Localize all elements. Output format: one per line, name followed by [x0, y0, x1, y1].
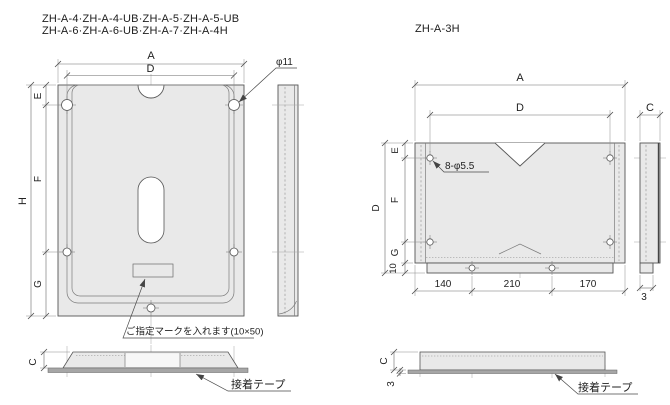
left-tape-strip [48, 368, 248, 373]
technical-drawing-page: ZH-A-4·ZH-A-4-UB·ZH-A-5·ZH-A-5-UB ZH-A-6… [0, 0, 670, 405]
right-bottom-view: C 3 接着テープ [379, 349, 638, 394]
left-dim-EFG: E F G [33, 82, 58, 319]
left-dim-D-label: D [147, 63, 155, 75]
right-dim-C-bottom-label: C [379, 357, 390, 364]
left-drawing: ZH-A-4·ZH-A-4-UB·ZH-A-5·ZH-A-5-UB ZH-A-6… [17, 13, 304, 391]
drawing-canvas: ZH-A-4·ZH-A-4-UB·ZH-A-5·ZH-A-5-UB ZH-A-6… [0, 0, 670, 405]
right-dim-10-label: 10 [388, 263, 399, 274]
left-tape-label: 接着テープ [231, 377, 285, 391]
left-hole-callout-label: φ11 [276, 57, 293, 68]
right-dim-vertical-outer-label: D [371, 204, 382, 211]
right-dim-3-bottom-label: 3 [386, 381, 397, 387]
right-dim-3-side-label: 3 [641, 292, 647, 303]
right-side-view: 3 [634, 143, 666, 303]
left-mark-note-text: ご指定マークを入れます(10×50) [126, 326, 264, 338]
right-bottom-strip [427, 263, 613, 273]
right-dim-G-label: G [390, 248, 401, 256]
left-dim-H-label: H [17, 197, 29, 205]
left-dim-F-label: F [33, 176, 44, 182]
right-dim-170-label: 170 [580, 279, 597, 290]
right-dim-D-label: D [516, 102, 524, 114]
right-dim-C-top: C [637, 102, 663, 141]
left-front-view [58, 85, 244, 316]
right-dim-C-top-label: C [646, 102, 654, 114]
right-bottom-profile [420, 352, 605, 370]
left-bottom-view: C 接着テープ [28, 349, 291, 391]
right-hole-callout-label: 8-φ5.5 [445, 161, 475, 172]
right-dim-F-label: F [390, 197, 401, 203]
left-title-line2: ZH-A-6·ZH-A-6-UB·ZH-A-7·ZH-A-4H [42, 25, 228, 37]
right-title: ZH-A-3H [415, 23, 460, 35]
right-dim-E-label: E [390, 147, 401, 153]
left-dim-C-label: C [28, 358, 39, 365]
right-tape-label: 接着テープ [578, 380, 632, 394]
right-dim-210-label: 210 [504, 279, 521, 290]
left-side-view [272, 85, 304, 316]
left-oval-slot [138, 177, 164, 243]
right-drawing: ZH-A-3H [371, 23, 666, 394]
right-dim-A-label: A [516, 72, 524, 84]
left-title-line1: ZH-A-4·ZH-A-4-UB·ZH-A-5·ZH-A-5-UB [42, 13, 239, 25]
left-dim-A-label: A [147, 50, 155, 62]
right-dim-140-label: 140 [435, 279, 452, 290]
right-tape-strip [408, 370, 617, 374]
left-dim-E-label: E [33, 92, 44, 99]
left-dim-G-label: G [33, 280, 44, 288]
